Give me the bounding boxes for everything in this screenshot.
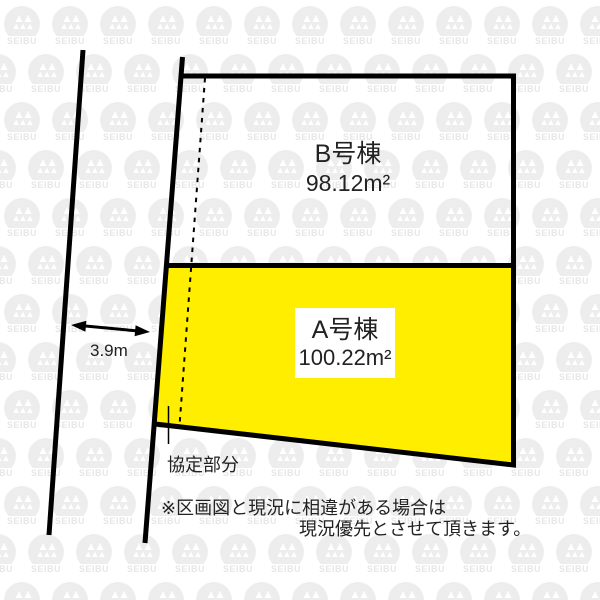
disclaimer-note-line1: ※区画図と現況に相違がある場合は: [161, 498, 446, 519]
disclaimer-note-line2: 現況優先とさせて頂きます。: [299, 519, 531, 540]
plot-a-name: A号棟: [312, 315, 379, 345]
plot-b-area: 98.12m²: [293, 170, 403, 197]
road-left-edge-line: [49, 50, 83, 535]
arrowhead-left: [71, 321, 86, 332]
plot-a-area: 100.22m²: [299, 345, 392, 371]
plot-b-name: B号棟: [293, 139, 403, 170]
land-plot-diagram: ▲▲▲▲▲SEIBU▲▲▲▲▲SEIBU▲▲▲▲▲SEIBU▲▲▲▲▲SEIBU…: [0, 0, 600, 600]
road-width-label: 3.9m: [90, 341, 128, 361]
agreement-label: 協定部分: [167, 451, 239, 477]
arrowhead-right: [135, 325, 150, 336]
plot-b-label: B号棟 98.12m²: [293, 139, 403, 197]
road-width-arrow: [71, 321, 150, 336]
plot-a-label-box: A号棟 100.22m²: [295, 308, 395, 378]
